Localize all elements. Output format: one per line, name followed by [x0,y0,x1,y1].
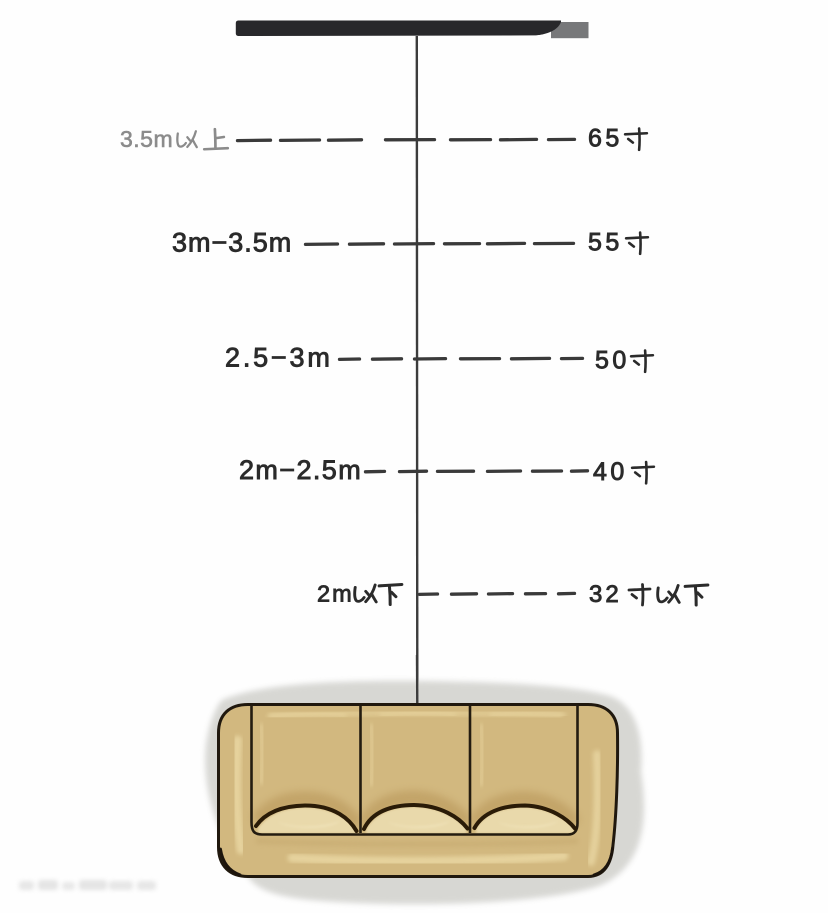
svg-text:2m: 2m [317,581,354,607]
svg-text:65: 65 [588,125,623,153]
svg-text:3.5m: 3.5m [120,126,173,152]
svg-text:50: 50 [595,347,630,375]
svg-text:2.5−3m: 2.5−3m [225,343,333,373]
svg-text:3m−3.5m: 3m−3.5m [172,228,292,258]
svg-text:2m−2.5m: 2m−2.5m [239,455,362,485]
svg-text:40: 40 [593,458,628,486]
svg-text:32: 32 [589,581,622,608]
svg-text:55: 55 [588,229,623,257]
